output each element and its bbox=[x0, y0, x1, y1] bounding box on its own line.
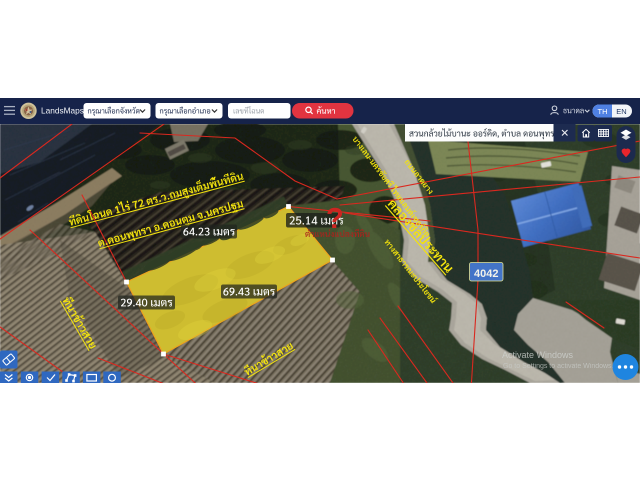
svg-text:Go to Settings to activate Win: Go to Settings to activate Windows. bbox=[503, 363, 614, 370]
svg-text:LandsMaps: LandsMaps bbox=[41, 106, 84, 116]
svg-text:?: ? bbox=[326, 203, 344, 235]
svg-text:4042: 4042 bbox=[474, 268, 498, 280]
svg-text:TH: TH bbox=[598, 107, 608, 116]
svg-text:Activate Windows: Activate Windows bbox=[502, 350, 574, 360]
svg-text:EN: EN bbox=[616, 107, 626, 116]
